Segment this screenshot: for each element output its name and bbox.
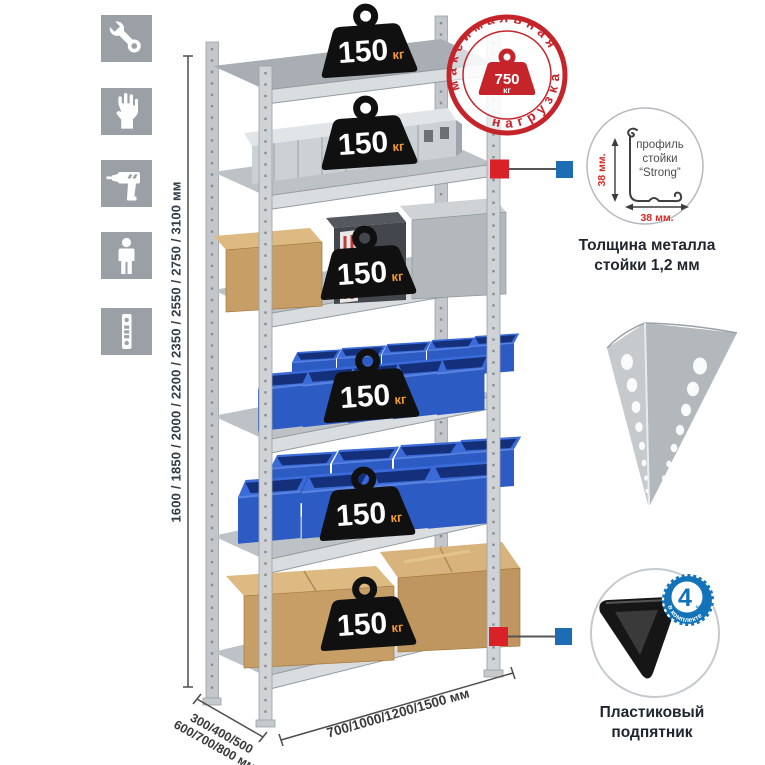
load-unit: кг: [392, 138, 406, 154]
load-value: 150: [335, 497, 387, 533]
foot-caption: Пластиковый подпятник: [600, 703, 705, 743]
plastic-foot-circle: 4 штуки в комплекте: [591, 569, 719, 697]
height-dimension-label: 1600 / 1850 / 2000 / 2200 / 2350 / 2550 …: [169, 181, 184, 522]
blue-marker-top: [556, 161, 573, 178]
load-value: 150: [336, 607, 388, 643]
quantity-badge: 4 штуки в комплекте: [662, 574, 714, 626]
load-value: 150: [337, 126, 389, 162]
svg-text:стойки: стойки: [642, 153, 677, 165]
stamp-unit: кг: [503, 85, 511, 95]
profile-detail-circle: 38 мм. 38 мм. профиль стойки “Strong”: [587, 108, 703, 224]
load-unit: кг: [394, 391, 408, 407]
dim-38-vertical: 38 мм.: [596, 153, 608, 186]
profile-caption: Толщина металла стойки 1,2 мм: [579, 236, 716, 276]
rack-scene: 150 кг 150 кг 150 кг 150 кг 150 кг: [0, 0, 765, 765]
load-unit: кг: [390, 509, 404, 525]
badge-small-label: штуки: [696, 604, 710, 609]
load-value: 150: [339, 379, 391, 415]
profile-label: профиль стойки “Strong”: [636, 139, 684, 179]
svg-text:профиль: профиль: [636, 139, 684, 151]
svg-text:“Strong”: “Strong”: [639, 167, 681, 179]
load-value: 150: [336, 256, 388, 292]
red-marker-top: [490, 160, 509, 179]
load-unit: кг: [391, 619, 405, 635]
dim-38-horizontal: 38 мм.: [640, 212, 673, 224]
badge-value: 4: [678, 584, 692, 612]
angle-post-image: [607, 323, 737, 505]
shelving-infographic: 150 кг 150 кг 150 кг 150 кг 150 кг: [0, 0, 765, 765]
load-unit: кг: [392, 46, 406, 62]
shelf-load-badge: 150 кг: [317, 96, 417, 171]
height-dimension-line: [183, 56, 193, 687]
shelf-load-badge: 150 кг: [317, 4, 417, 79]
blue-marker-bottom: [555, 628, 572, 645]
load-unit: кг: [391, 268, 405, 284]
load-value: 150: [337, 34, 389, 70]
red-marker-bottom: [489, 627, 508, 646]
